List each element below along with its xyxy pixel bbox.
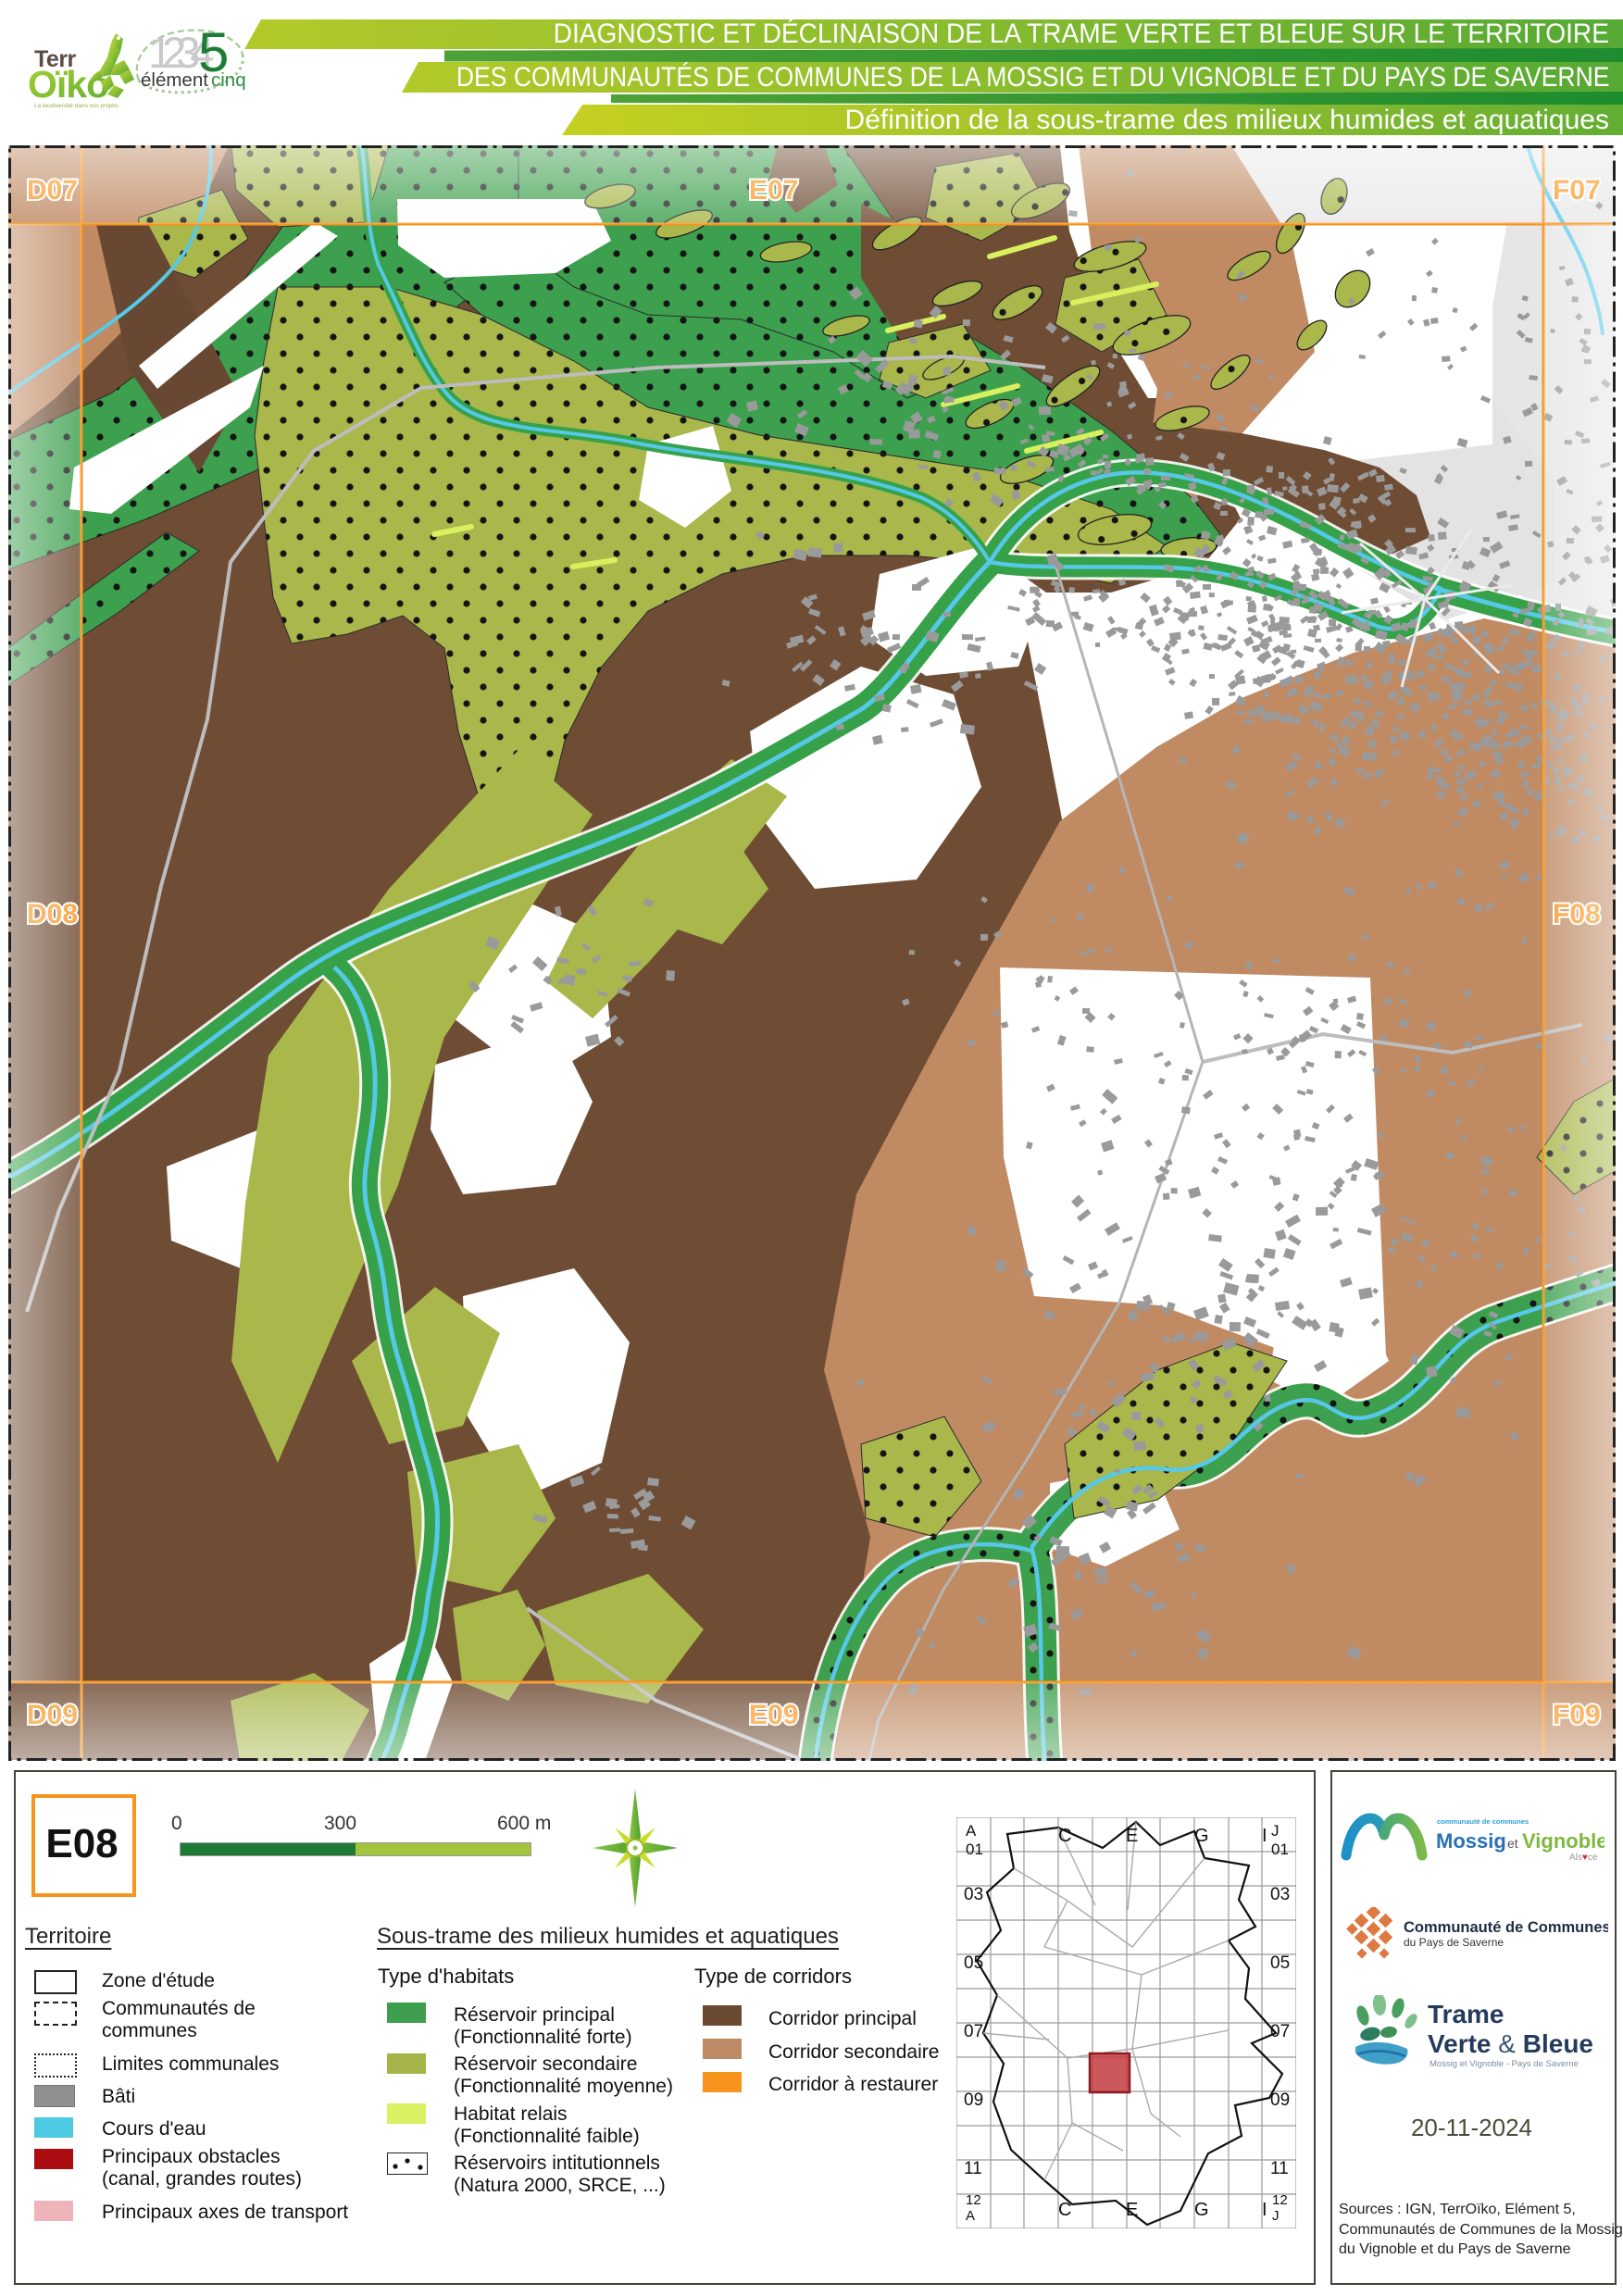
svg-text:communauté de communes: communauté de communes — [1437, 1817, 1529, 1826]
svg-text:élément: élément — [141, 69, 208, 91]
svg-text:du Pays de Saverne: du Pays de Saverne — [1404, 1936, 1504, 1949]
svg-text:Mossig et Vignoble - Pays de S: Mossig et Vignoble - Pays de Saverne — [1429, 2059, 1579, 2069]
svg-text:Communauté de Communes: Communauté de Communes — [1404, 1919, 1608, 1936]
svg-text:Oïko: Oïko — [28, 63, 108, 106]
svg-text:Vignoble: Vignoble — [1522, 1829, 1604, 1853]
svg-text:Als♥ce: Als♥ce — [1569, 1853, 1598, 1863]
svg-text:La biodiversité dans vos proje: La biodiversité dans vos projets — [34, 103, 119, 109]
svg-text:Mossig: Mossig — [1436, 1829, 1506, 1853]
svg-text:Verte & Bleue: Verte & Bleue — [1428, 2029, 1593, 2058]
svg-text:Trame: Trame — [1428, 2000, 1504, 2028]
svg-text:et: et — [1507, 1836, 1518, 1851]
svg-text:cinq: cinq — [211, 69, 246, 91]
